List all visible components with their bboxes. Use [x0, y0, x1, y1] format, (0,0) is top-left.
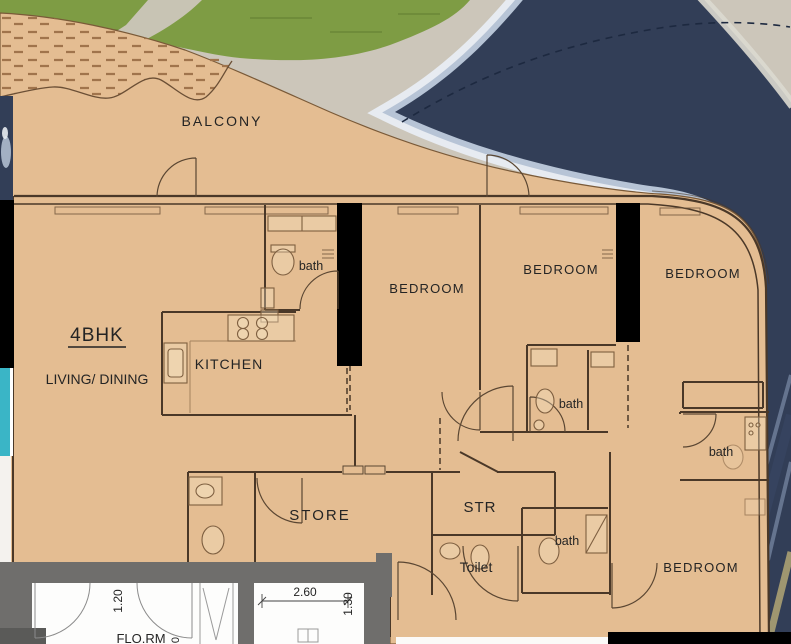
water-sliver-highlight [1, 136, 11, 168]
dim-1-30: 1.30 [341, 592, 355, 616]
label-bath-bottom: bath [555, 534, 579, 548]
label-unit-type: 4BHK [70, 325, 124, 346]
label-bedroom-2: BEDROOM [523, 262, 599, 277]
floor-plan-screenshot: BALCONY 4BHK LIVING/ DINING KITCHEN bath… [0, 0, 791, 644]
dim-2-60: 2.60 [293, 585, 317, 599]
label-kitchen: KITCHEN [195, 356, 263, 372]
lower-wall-corner [0, 628, 46, 644]
lower-wall-v3 [376, 553, 392, 597]
label-bedroom-1: BEDROOM [389, 281, 465, 296]
column-right [616, 203, 640, 342]
glass-window-teal [0, 368, 10, 456]
label-bedroom-4: BEDROOM [663, 560, 739, 575]
label-bath-middle: bath [559, 397, 583, 411]
glass-window-frame [10, 368, 13, 456]
label-living-dining: LIVING/ DINING [46, 371, 149, 387]
column-left [0, 200, 14, 368]
bottom-white-strip [396, 637, 608, 644]
label-toilet: Toilet [460, 559, 493, 575]
label-bath-right: bath [709, 445, 733, 459]
bedroom4-unit-box [745, 499, 765, 515]
left-edge-lower [0, 456, 11, 562]
lower-wall-v1 [238, 583, 254, 644]
label-bedroom-3: BEDROOM [665, 266, 741, 281]
label-balcony: BALCONY [182, 113, 263, 129]
column-center [337, 203, 362, 366]
label-str: STR [464, 499, 497, 516]
label-bath-entry: bath [299, 259, 323, 273]
dim-1-20: 1.20 [111, 589, 125, 613]
label-store: STORE [289, 507, 350, 524]
column-bottom-bar [608, 632, 791, 644]
lower-wall-band [0, 562, 392, 583]
dim-partial: 0 [170, 637, 182, 643]
label-flo-rm: FLO.RM [116, 631, 165, 644]
water-sliver-glint [2, 127, 8, 139]
